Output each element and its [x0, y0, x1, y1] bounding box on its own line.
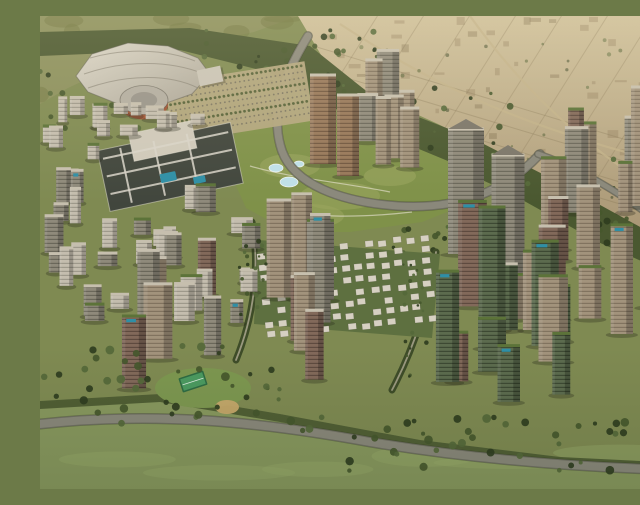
city-aerial-illustration: [40, 16, 640, 489]
masterplan-render: Aerial rendering of a planned city distr…: [40, 16, 640, 489]
